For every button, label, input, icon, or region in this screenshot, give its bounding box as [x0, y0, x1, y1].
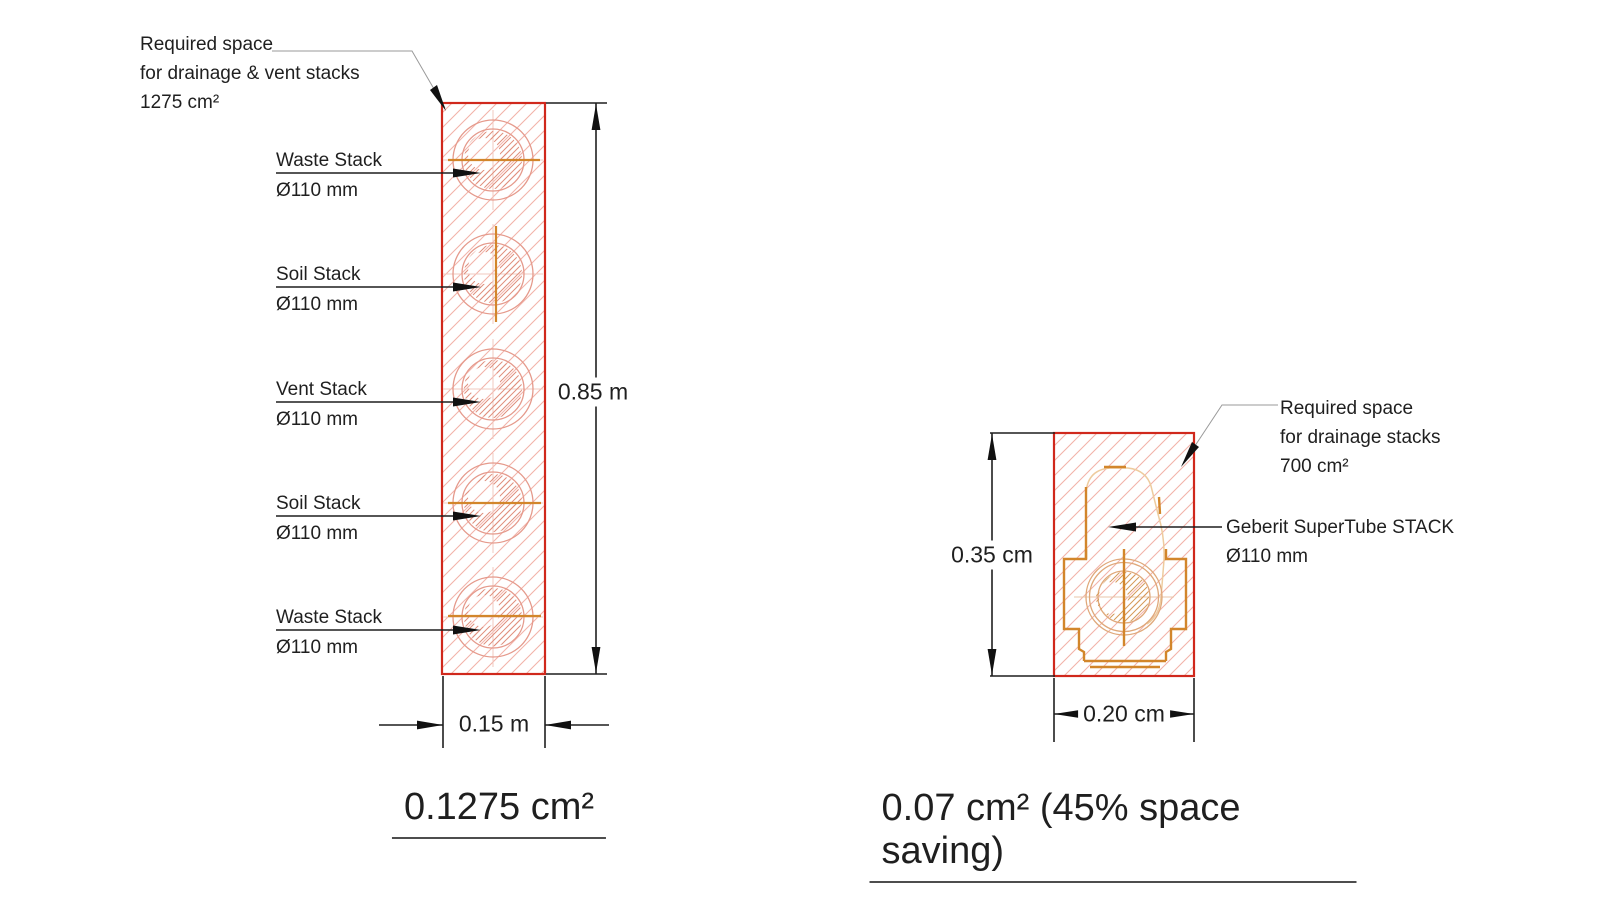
drawing-canvas: Required space for drainage & vent stack… [0, 0, 1600, 900]
right-annotation-line2: for drainage stacks [1280, 423, 1441, 452]
right-annotation-line1: Required space [1280, 394, 1441, 423]
left-area-title: 0.1275 cm² [392, 786, 606, 839]
right-annotation: Required space for drainage stacks 700 c… [1280, 394, 1441, 481]
right-wall-section [988, 405, 1278, 742]
stack-label-waste-2: Waste Stack Ø110 mm [276, 607, 382, 658]
left-annotation-line1: Required space [140, 30, 360, 59]
left-annotation: Required space for drainage & vent stack… [140, 30, 360, 117]
stack-name: Soil Stack [276, 493, 360, 514]
stack-label-waste-1: Waste Stack Ø110 mm [276, 150, 382, 201]
right-annotation-leader [1181, 405, 1278, 467]
stack-name: Waste Stack [276, 607, 382, 628]
stack-size: Ø110 mm [276, 409, 367, 430]
left-annotation-line2: for drainage & vent stacks [140, 59, 360, 88]
stack-name: Waste Stack [276, 150, 382, 171]
product-name: Geberit SuperTube STACK [1226, 513, 1454, 542]
right-area-title: 0.07 cm² (45% space saving) [870, 787, 1357, 883]
stack-size: Ø110 mm [276, 523, 360, 544]
stack-name: Soil Stack [276, 264, 360, 285]
product-label: Geberit SuperTube STACK Ø110 mm [1226, 513, 1454, 571]
product-size: Ø110 mm [1226, 542, 1454, 571]
right-width-dim-text: 0.20 cm [1078, 700, 1170, 729]
left-height-dim-text: 0.85 m [553, 378, 633, 407]
stack-label-vent: Vent Stack Ø110 mm [276, 379, 367, 430]
stack-name: Vent Stack [276, 379, 367, 400]
stack-label-soil-2: Soil Stack Ø110 mm [276, 493, 360, 544]
right-height-dim-text: 0.35 cm [946, 541, 1038, 570]
stack-label-soil-1: Soil Stack Ø110 mm [276, 264, 360, 315]
right-annotation-line3: 700 cm² [1280, 452, 1441, 481]
left-annotation-line3: 1275 cm² [140, 88, 360, 117]
stack-size: Ø110 mm [276, 180, 382, 201]
left-width-dim-text: 0.15 m [454, 710, 534, 739]
stack-size: Ø110 mm [276, 294, 360, 315]
stack-size: Ø110 mm [276, 637, 382, 658]
